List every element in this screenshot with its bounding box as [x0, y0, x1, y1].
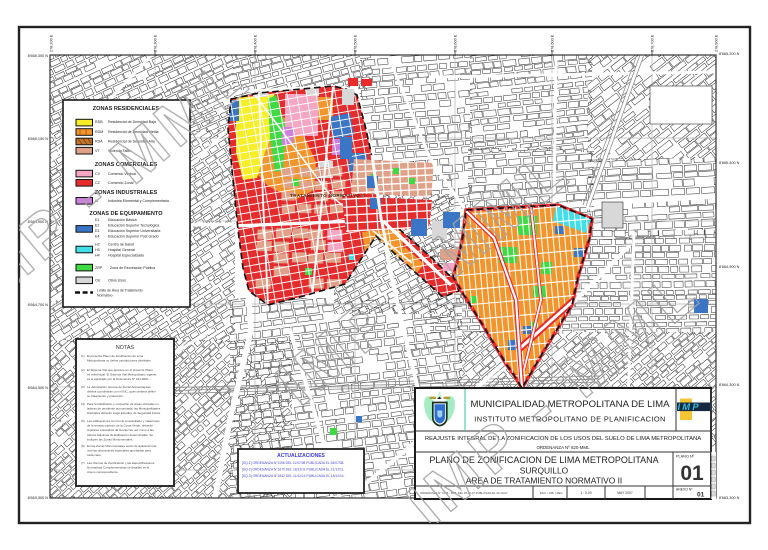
svg-text:Hospital Especializado: Hospital Especializado [108, 254, 144, 258]
svg-text:IMP: IMP [678, 401, 701, 412]
svg-text:(5): (5) [81, 419, 85, 423]
svg-text:8'664,900 N: 8'664,900 N [719, 265, 740, 269]
svg-text:Normativas Complementarias se: Normativas Complementarias se detallan e… [87, 466, 150, 470]
svg-text:ESC. / DIB. / REV.: ESC. / DIB. / REV. [540, 491, 563, 495]
svg-text:Otros Usos: Otros Usos [108, 279, 126, 283]
svg-text:278,700 E: 278,700 E [651, 34, 655, 52]
svg-text:H2: H2 [95, 243, 100, 247]
svg-text:8'664,700 N: 8'664,700 N [28, 303, 49, 307]
svg-text:cada caso.: cada caso. [87, 453, 102, 457]
svg-text:PLANO Nº: PLANO Nº [676, 455, 695, 459]
svg-text:Hospital General: Hospital General [108, 248, 135, 252]
svg-text:es referencial. El Sistema Via: es referencial. El Sistema Vial Metropol… [87, 373, 157, 377]
svg-text:[SQ-3] ORDENANZA N°1842 DEL 1: [SQ-3] ORDENANZA N°1842 DEL 11/12/14 PUB… [242, 474, 345, 478]
svg-text:El presente Plano de Zonificac: El presente Plano de Zonificación de Lim… [87, 354, 144, 358]
svg-text:01: 01 [697, 492, 705, 499]
svg-text:SURQUILLO: SURQUILLO [520, 466, 569, 476]
svg-text:8'665,400 N: 8'665,400 N [719, 161, 740, 165]
svg-text:(3): (3) [81, 385, 85, 389]
svg-text:RDB: RDB [95, 120, 103, 124]
svg-text:(6): (6) [81, 444, 85, 448]
svg-text:OU: OU [95, 279, 101, 283]
svg-text:Límite de Área de Tratamiento: Límite de Área de Tratamiento [97, 289, 143, 293]
svg-text:Alturas Máximas de Edificación: Alturas Máximas de Edificación determina… [87, 433, 153, 437]
svg-text:Para la habilitación y ocupaci: Para la habilitación y ocupación de área… [87, 402, 159, 406]
svg-text:Educación Superior Post Grado: Educación Superior Post Grado [108, 235, 159, 239]
svg-text:8'664,300 N: 8'664,300 N [719, 383, 740, 387]
svg-text:Zona de Recreación Pública: Zona de Recreación Pública [110, 266, 155, 270]
svg-text:Centro de Salud: Centro de Salud [108, 243, 134, 247]
svg-text:Las Normas de Zonificación y l: Las Normas de Zonificación y las Especif… [87, 461, 155, 465]
svg-text:El Sistema Vial que aparece en: El Sistema Vial que aparece en el presen… [87, 368, 153, 372]
svg-text:Las edificaciones con frente a: Las edificaciones con frente al acantila… [87, 419, 160, 423]
svg-text:su tratamiento y protección.: su tratamiento y protección. [87, 394, 124, 398]
svg-text:8'665,200 N: 8'665,200 N [719, 52, 740, 56]
svg-text:278,600 E: 278,600 E [454, 34, 458, 52]
svg-text:normas urbanísticas especiales: normas urbanísticas especiales aprobadas… [87, 449, 151, 453]
svg-text:(4): (4) [81, 402, 85, 406]
svg-text:01: 01 [680, 462, 704, 485]
svg-text:[SQ-2] ORDENANZA N°1675 DEL 1: [SQ-2] ORDENANZA N°1675 DEL 18/12/11 PUB… [242, 468, 344, 472]
svg-text:278,600 E: 278,600 E [551, 34, 555, 52]
svg-text:Normativo: Normativo [97, 294, 113, 298]
svg-text:8'664,500 N: 8'664,500 N [28, 386, 49, 390]
svg-text:sujetarse a Estudios de Geotec: sujetarse a Estudios de Geotecnia, así c… [87, 428, 154, 432]
svg-text:NOTAS: NOTAS [116, 345, 135, 351]
svg-text:Distritales deberán exigir Est: Distritales deberán exigir Estudios de S… [87, 411, 161, 415]
svg-text:(1): (1) [81, 354, 85, 358]
svg-text:Metropolitana no define jurisd: Metropolitana no define jurisdicciones d… [87, 359, 152, 363]
svg-text:RDM: RDM [95, 130, 103, 134]
svg-text:8'663,300 N: 8'663,300 N [28, 496, 49, 500]
svg-text:8'665,300 N: 8'665,300 N [28, 54, 49, 58]
svg-text:278,500 E: 278,500 E [354, 34, 358, 52]
svg-text:278,300 E: 278,300 E [154, 34, 158, 52]
svg-text:incluyen las Zonas Monumentale: incluyen las Zonas Monumentales. [87, 437, 133, 441]
svg-text:(2): (2) [81, 368, 85, 372]
svg-text:H3: H3 [95, 248, 100, 252]
svg-text:MAY 2007: MAY 2007 [617, 491, 633, 495]
svg-text:[SQ-1] ORDENANZA N°1196 DEL 1: [SQ-1] ORDENANZA N°1196 DEL 11/07/08 PUB… [242, 461, 344, 465]
svg-text:TRATAMIENTO NORMATIVO II: TRATAMIENTO NORMATIVO II [290, 193, 365, 198]
svg-text:278,200 E: 278,200 E [50, 34, 54, 52]
svg-text:8'663,300 N: 8'663,300 N [719, 496, 740, 500]
svg-text:ZRP: ZRP [95, 266, 103, 270]
svg-text:deberá coordinarse con el INC,: deberá coordinarse con el INC, quien deb… [87, 390, 156, 394]
svg-text:8'665,100 N: 8'665,100 N [28, 137, 49, 141]
svg-text:Educación Superior Tecnológica: Educación Superior Tecnológica [108, 224, 159, 228]
svg-text:La delimitación precisa de Zon: La delimitación precisa de Zonas Arqueol… [87, 385, 151, 389]
svg-text:H4: H4 [95, 254, 100, 258]
svg-text:ANEXO Nº: ANEXO Nº [676, 488, 693, 492]
svg-text:de la terraza superior de la C: de la terraza superior de la Costa Verde… [87, 424, 153, 428]
svg-text:es el aprobado por la Ordenanz: es el aprobado por la Ordenanza N° 341-M… [87, 377, 150, 381]
svg-text:Educación Superior Universitar: Educación Superior Universitaria [108, 229, 160, 233]
svg-text:En las Zonas Monumentales será: En las Zonas Monumentales serán de aplic… [87, 444, 157, 448]
svg-text:278,400 E: 278,400 E [254, 34, 258, 52]
svg-text:1 : 5,00: 1 : 5,00 [580, 491, 591, 495]
svg-text:laderas de pendiente pronuncia: laderas de pendiente pronunciada, las Mu… [87, 407, 161, 411]
svg-text:Anexo correspondiente.: Anexo correspondiente. [87, 470, 119, 474]
svg-text:278,900 E: 278,900 E [715, 34, 719, 52]
svg-text:(7): (7) [81, 461, 85, 465]
svg-text:ACTUALIZACIONES: ACTUALIZACIONES [277, 453, 325, 459]
